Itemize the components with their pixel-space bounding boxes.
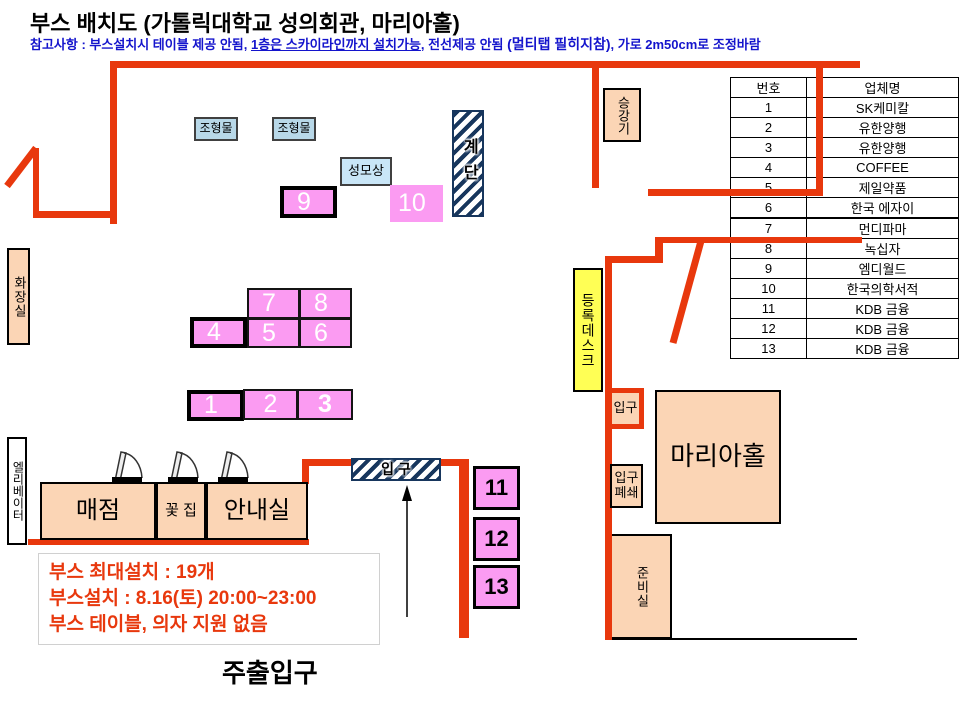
- booth-2: 2: [243, 389, 298, 420]
- booth-12: 12: [473, 517, 520, 561]
- direction-arrow: [402, 485, 412, 617]
- booth-1: 1: [187, 390, 244, 421]
- booth-11: 11: [473, 466, 520, 510]
- room-info: 안내실: [206, 482, 308, 540]
- label-sculpture-2: 조형물: [272, 117, 316, 141]
- table-row: 10한국의학서적: [731, 279, 959, 299]
- table-header-row: 번호 업체명: [731, 78, 959, 98]
- table-row: 13KDB 금융: [731, 339, 959, 359]
- company-table: 번호 업체명 1SK케미칼 2유한양행 3유한양행 4COFFEE 5제일약품 …: [730, 77, 959, 359]
- info-line-1: 부스 최대설치 : 19개: [49, 560, 369, 586]
- table-row: 4COFFEE: [731, 158, 959, 178]
- label-statue: 성모상: [340, 157, 392, 186]
- wall-segment: [648, 189, 823, 196]
- table-row: 9엠디월드: [731, 259, 959, 279]
- note-underlined: 1층은 스카이라인까지 설치가능: [251, 37, 421, 52]
- col-header-company: 업체명: [807, 78, 959, 98]
- wall-segment: [302, 459, 351, 466]
- diagonal-wall-left: [7, 148, 36, 186]
- stairs-label: 계단: [459, 138, 477, 190]
- wall-segment: [110, 61, 860, 68]
- note-bold: (멀티탭 필히지참): [507, 36, 610, 52]
- entrance-hatched-label: 입 구: [381, 461, 411, 477]
- room-stairs: 계단: [452, 110, 484, 217]
- room-store: 매점: [40, 482, 156, 540]
- info-line-2: 부스설치 : 8.16(토) 20:00~23:00: [49, 586, 369, 612]
- table-row: 6한국 에자이: [731, 198, 959, 219]
- wall-segment: [33, 148, 39, 218]
- room-restroom: 화장실: [7, 248, 30, 345]
- info-line-3: 부스 테이블, 의자 지원 없음: [49, 612, 369, 638]
- wall-segment: [610, 256, 663, 263]
- room-flower-shop: 꽃 집: [156, 482, 206, 540]
- note-mid: , 전선제공 안됨: [421, 37, 507, 52]
- booth-6: 6: [299, 318, 352, 348]
- wall-segment: [302, 463, 309, 484]
- note-line: 참고사항 : 부스설치시 테이블 제공 안됨, 1층은 스카이라인까지 설치가능…: [30, 34, 761, 54]
- table-row: 11KDB 금융: [731, 299, 959, 319]
- booth-3: 3: [297, 389, 353, 420]
- col-header-number: 번호: [731, 78, 807, 98]
- booth-13: 13: [473, 565, 520, 609]
- room-maria-hall: 마리아홀: [655, 390, 781, 524]
- diagonal-wall-right: [673, 241, 701, 343]
- table-row: 2유한양행: [731, 118, 959, 138]
- main-entrance-label: 주출입구: [222, 653, 318, 690]
- wall-segment: [605, 256, 612, 640]
- wall-segment: [459, 459, 469, 638]
- booth-7: 7: [247, 288, 300, 319]
- door-icon: [112, 452, 142, 483]
- setup-info-box: 부스 최대설치 : 19개 부스설치 : 8.16(토) 20:00~23:00…: [38, 553, 380, 645]
- booth-10: 10: [390, 185, 443, 222]
- registration-desk: 등록데스크: [573, 268, 603, 392]
- room-prep: 준비실: [610, 534, 672, 639]
- table-row: 12KDB 금융: [731, 319, 959, 339]
- booth-4: 4: [190, 317, 247, 348]
- booth-9: 9: [280, 186, 337, 218]
- wall-segment: [110, 61, 117, 224]
- table-row: 3유한양행: [731, 138, 959, 158]
- door-icon: [218, 452, 248, 483]
- note-suffix: , 가로 2m50cm로 조정바람: [611, 37, 761, 52]
- room-lift-right: 승강기: [603, 88, 641, 142]
- entrance-hatched: 입 구: [351, 458, 441, 481]
- table-row: 7먼디파마: [731, 218, 959, 239]
- wall-segment: [34, 211, 117, 218]
- entrance-closed: 입구폐쇄: [610, 464, 643, 508]
- floor-plan: 부스 배치도 (가톨릭대학교 성의회관, 마리아홀) 참고사항 : 부스설치시 …: [0, 0, 960, 720]
- wall-segment: [592, 61, 599, 188]
- wall-segment: [657, 237, 862, 243]
- room-elevator-left: 엘리베이터: [7, 437, 27, 545]
- door-icon: [168, 452, 198, 483]
- label-sculpture-1: 조형물: [194, 117, 238, 141]
- booth-5: 5: [247, 318, 300, 348]
- note-prefix: 참고사항 : 부스설치시 테이블 제공 안됨,: [30, 37, 251, 52]
- wall-segment: [816, 61, 823, 196]
- table-row: 1SK케미칼: [731, 98, 959, 118]
- entrance-open: 입구: [607, 388, 644, 429]
- booth-8: 8: [299, 288, 352, 319]
